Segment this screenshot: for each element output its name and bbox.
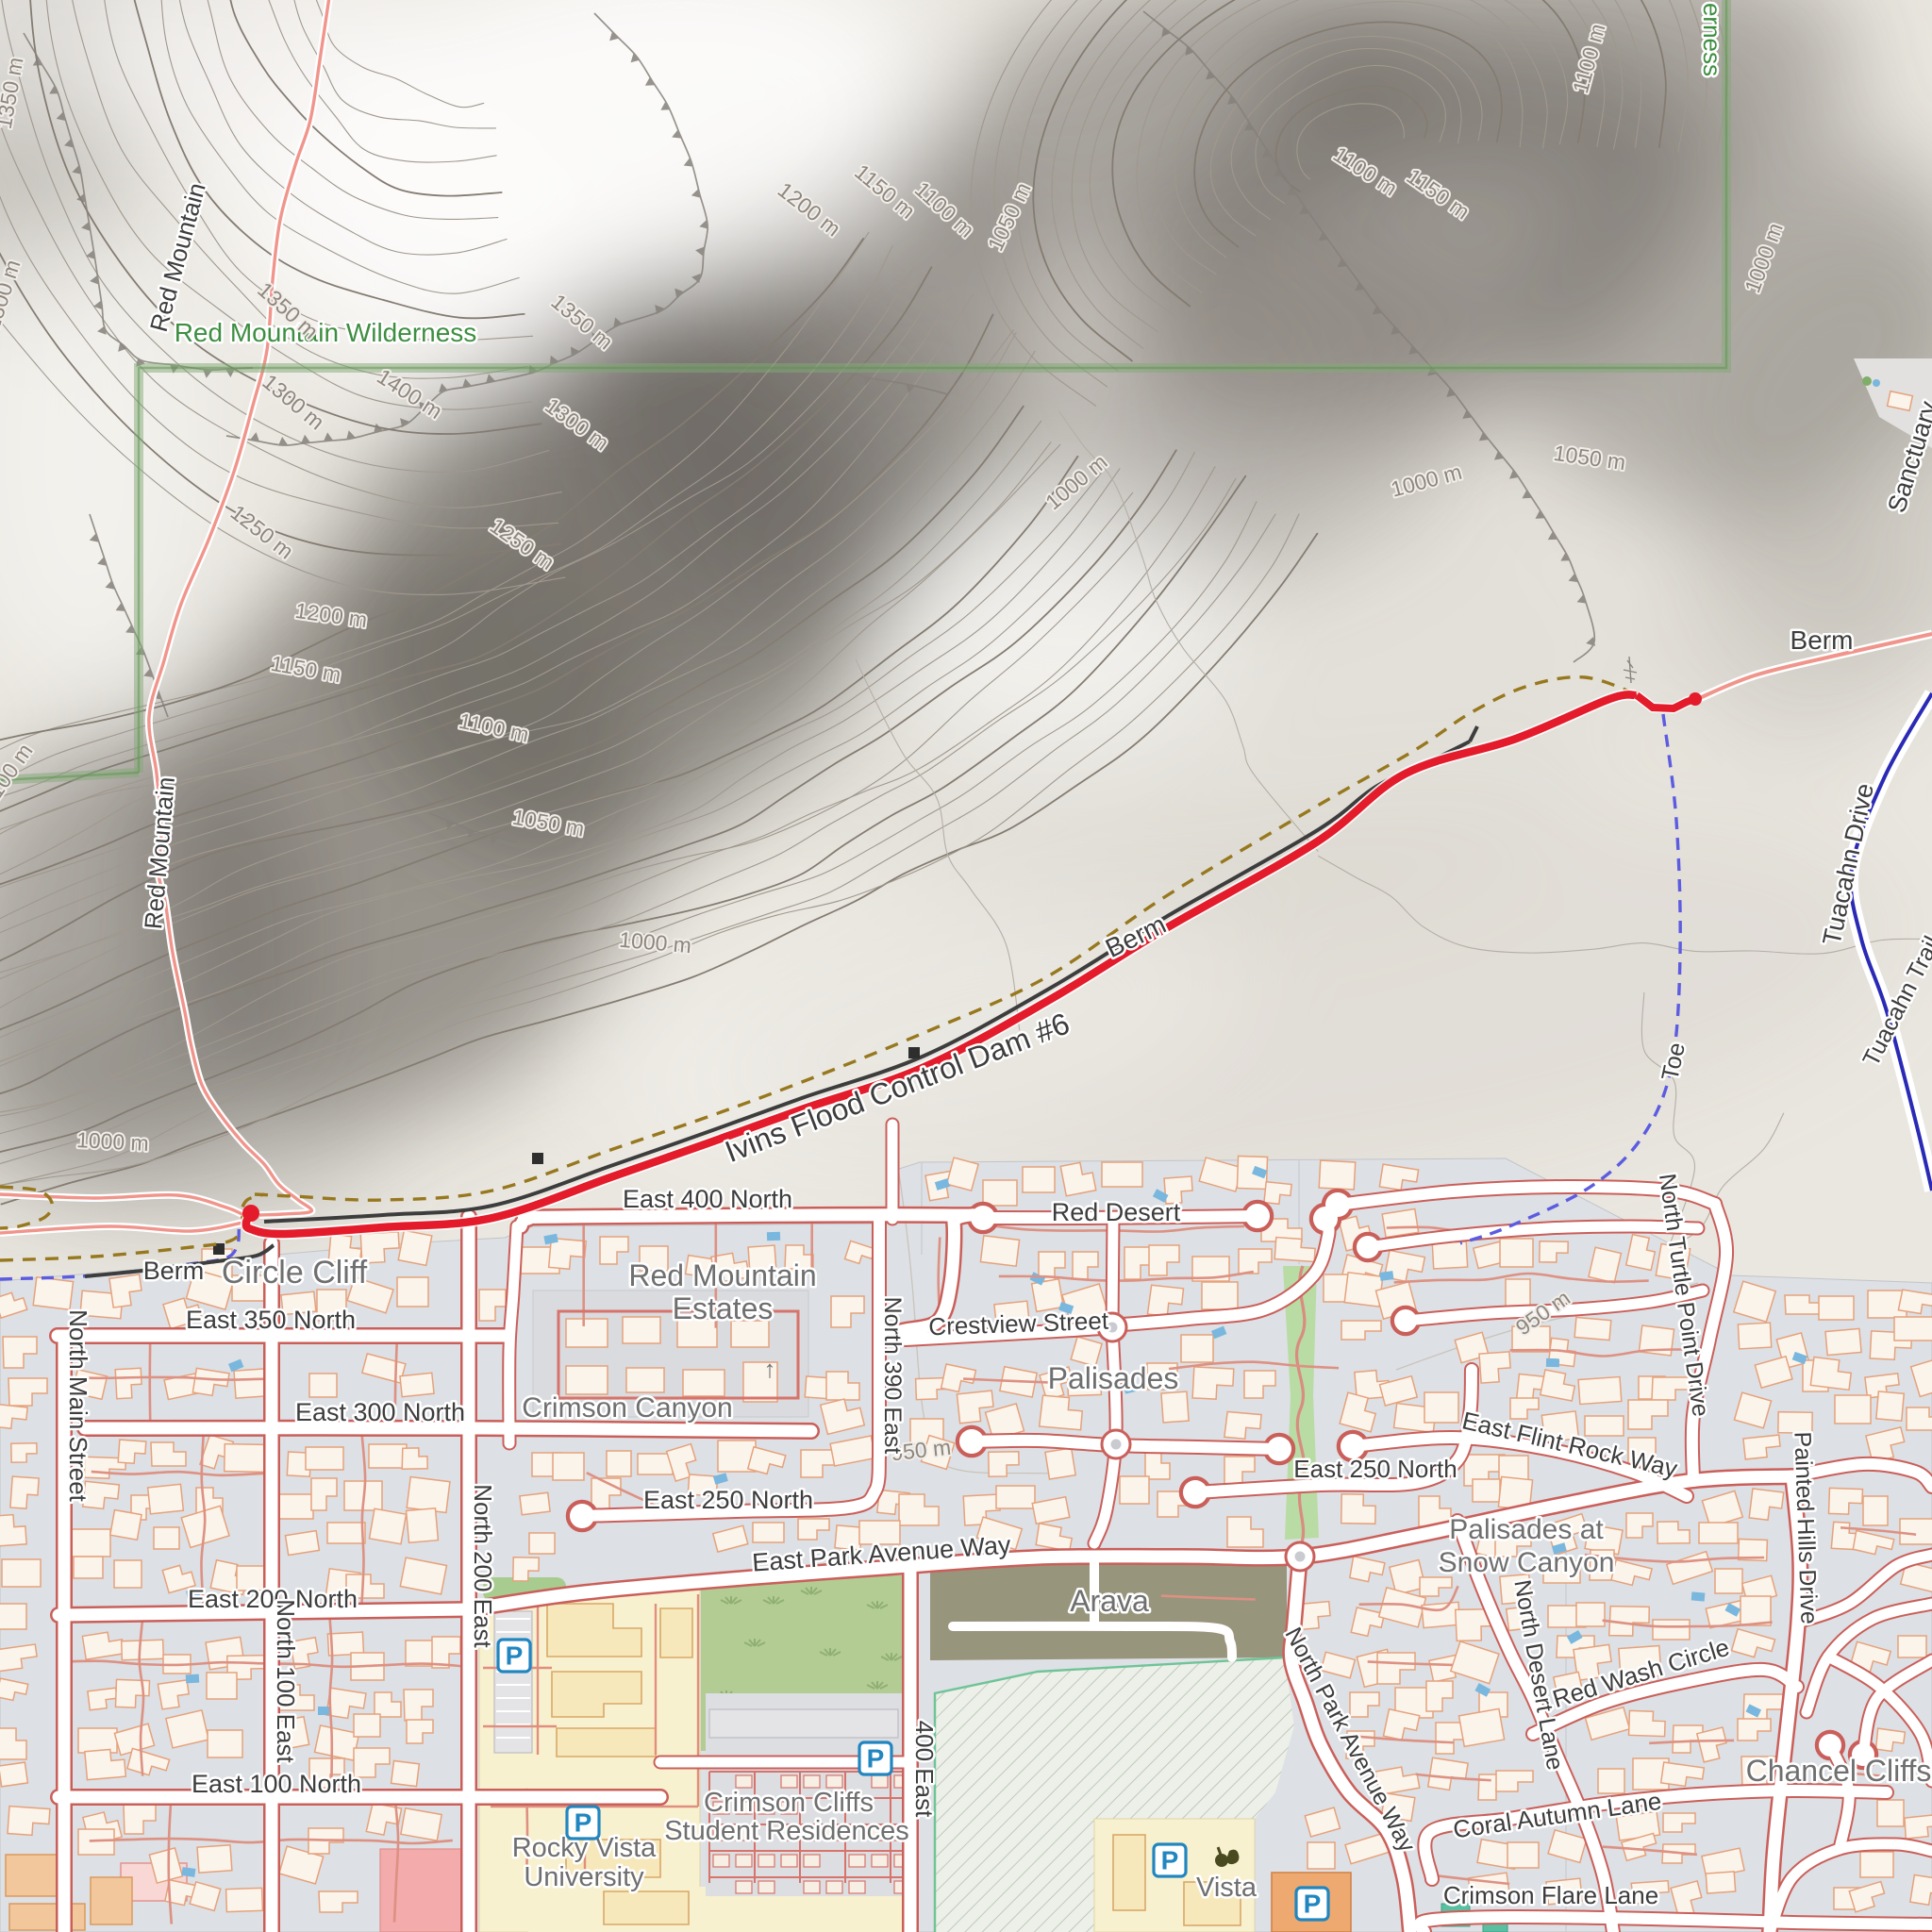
svg-text:400 East: 400 East: [910, 1721, 939, 1818]
svg-text:Crimson Canyon: Crimson Canyon: [522, 1392, 732, 1424]
svg-text:North 100 East: North 100 East: [272, 1599, 300, 1763]
svg-text:Red Mountain: Red Mountain: [628, 1258, 816, 1292]
svg-text:North 200 East: North 200 East: [469, 1484, 497, 1648]
svg-text:P: P: [1304, 1889, 1322, 1918]
svg-text:P: P: [867, 1743, 885, 1773]
svg-text:East 250 North: East 250 North: [1293, 1455, 1457, 1483]
svg-text:Red Desert: Red Desert: [1052, 1198, 1181, 1226]
svg-text:Estates: Estates: [673, 1291, 774, 1325]
svg-text:Snow Canyon: Snow Canyon: [1439, 1547, 1615, 1578]
svg-text:Berm: Berm: [143, 1257, 205, 1285]
svg-text:Arava: Arava: [1070, 1584, 1149, 1618]
svg-text:Student Residences: Student Residences: [664, 1816, 909, 1846]
svg-text:Berm: Berm: [1790, 625, 1854, 655]
svg-text:P: P: [1161, 1845, 1179, 1874]
svg-text:University: University: [524, 1862, 644, 1892]
svg-text:erness: erness: [1698, 3, 1726, 76]
svg-text:East 250 North: East 250 North: [643, 1486, 813, 1514]
svg-text:Palisades at: Palisades at: [1449, 1514, 1604, 1545]
svg-text:North 390 East: North 390 East: [879, 1297, 906, 1455]
svg-text:P: P: [575, 1807, 592, 1837]
svg-text:Red Mountain Wilderness: Red Mountain Wilderness: [175, 318, 477, 347]
svg-text:East 350 North: East 350 North: [186, 1306, 356, 1334]
svg-text:Chancel Cliffs: Chancel Cliffs: [1746, 1754, 1932, 1788]
svg-text:East 400 North: East 400 North: [623, 1185, 792, 1213]
svg-text:P: P: [506, 1641, 524, 1670]
svg-text:East 300 North: East 300 North: [295, 1398, 465, 1426]
svg-text:Circle Cliff: Circle Cliff: [222, 1255, 368, 1291]
svg-text:North Main Street: North Main Street: [64, 1309, 92, 1503]
svg-text:1000 m: 1000 m: [75, 1127, 149, 1156]
svg-text:Palisades: Palisades: [1048, 1361, 1179, 1395]
svg-text:Crimson Cliffs: Crimson Cliffs: [704, 1788, 874, 1818]
svg-text:Crimson Flare Lane: Crimson Flare Lane: [1443, 1881, 1658, 1909]
svg-text:Vista: Vista: [1196, 1873, 1257, 1903]
svg-text:East 100 North: East 100 North: [192, 1770, 361, 1798]
svg-text:↑: ↑: [764, 1355, 776, 1383]
